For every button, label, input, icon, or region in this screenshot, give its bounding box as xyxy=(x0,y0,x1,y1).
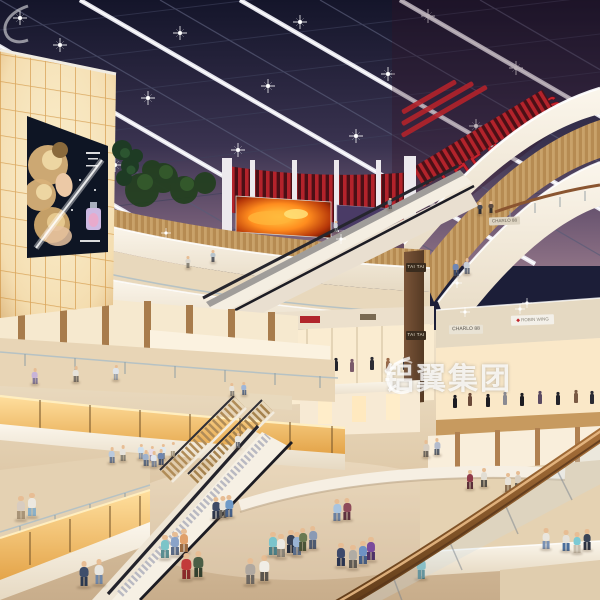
storefronts-right xyxy=(420,298,600,600)
scene-background: THEATRES xyxy=(0,0,600,600)
mall-atrium-rendering: THEATRES xyxy=(0,0,600,600)
storefront-sign-red xyxy=(300,316,320,323)
left-level2 xyxy=(0,290,345,470)
led-screen-fire xyxy=(236,196,331,238)
